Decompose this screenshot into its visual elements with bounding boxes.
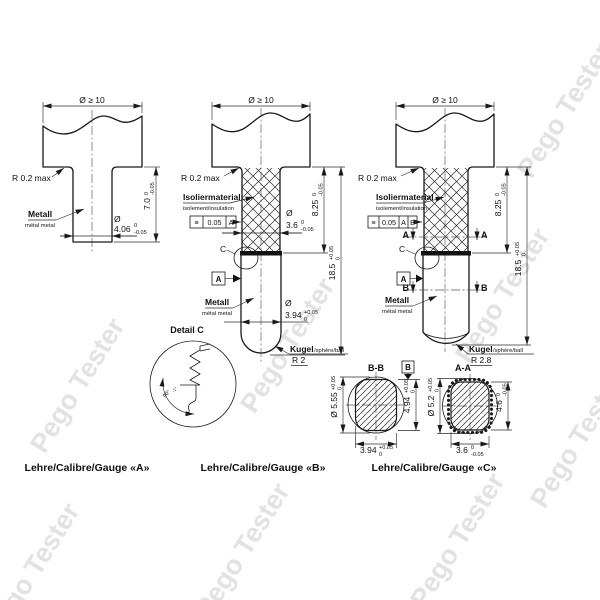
gauge-b-ins-dia-tol-bot: -0.05 [301,227,314,233]
gauge-b-radius-label: R 0.2 max [181,173,220,183]
gauge-b-top-dia: Ø ≥ 10 [248,95,274,105]
gauge-b-metal-label: Metall [205,297,229,307]
gauge-c-detail-ref: C [399,244,405,254]
gauge-b-insulation-label: Isoliermaterial [183,192,241,202]
section-aa-width-tol-top: 0 [471,445,474,451]
gauge-b-metal-sublabel: métal metal [202,311,232,317]
section-bb-width-value: 3.94 [360,445,377,455]
gauge-c-gdt-datum-ref-1: A [401,218,406,227]
gauge-c-title: Lehre/Calibre/Gauge «C» [372,462,497,474]
detail-c-title: Detail C [170,325,204,335]
gauge-c-gdt-symbol: ≡ [371,218,375,227]
gauge-b-insulation-hatch [242,168,280,251]
technical-drawing-page: Pego Tester Pego Tester Pego Tester Pego… [0,0,600,600]
section-bb-profile [356,380,397,431]
gauge-drawing-svg: Pego Tester Pego Tester Pego Tester Pego… [0,0,600,600]
gauge-b-ball-sublabel: /sphère/ball [314,348,344,354]
gauge-a-height-value: 7.0 [142,198,152,210]
section-bb-view: B-B B Ø 5.55 +0.05 0 4.94 +0.05 0 3.94 [329,361,420,458]
section-bb-height-tol-bot: 0 [411,390,417,393]
gauge-b-pin-dia-symbol: Ø [285,298,292,308]
gauge-c-top-dia: Ø ≥ 10 [432,95,458,105]
section-bb-width-tol-top: +0.05 [379,445,393,451]
gauge-a-radius-label: R 0.2 max [12,173,51,183]
watermark-text: Pego Tester [234,272,341,418]
gauge-c-ins-height-value: 8.25 [493,199,503,216]
gauge-b-pin-dia-value: 3.94 [285,310,302,320]
gauge-b-total-height-tol-top: +0.05 [329,246,335,260]
gauge-b-ins-dia-symbol: Ø [286,208,293,218]
gauge-c-radius-label: R 0.2 max [358,173,397,183]
gauge-c-section-bb-letter-left: B [403,283,410,293]
section-aa-width-value: 3.6 [456,445,468,455]
gauge-b-ball-radius: R 2 [292,355,306,365]
gauge-b-view: Ø ≥ 10 R 0.2 max Isoliermaterial isoleme… [181,95,348,366]
gauge-a-view: Ø ≥ 10 R 0.2 max Metall métal metal Ø 4.… [12,95,160,252]
section-bb-datum-flag: B [402,361,414,380]
gauge-b-gdt-frame: ≡ 0.05 A [190,216,241,228]
section-aa-dia-tol-top: +0.05 [428,378,434,392]
gauge-b-datum-a: A [212,272,241,285]
watermark-text: Pego Tester [189,477,296,600]
gauge-a-stem-dia-value: 4.06 [114,224,131,234]
detail-c-profile [180,346,200,413]
watermark-text: Pego Tester [524,367,600,513]
gauge-a-top-dia: Ø ≥ 10 [79,95,105,105]
watermark-text: Pego Tester [511,37,600,183]
gauge-c-insulation-label: Isoliermaterial [376,192,434,202]
section-bb-dia-tol-bot: 0 [338,387,344,390]
gauge-c-section-aa-letter-right: A [481,230,488,240]
section-aa-height-tol-bot: -0.05 [503,383,509,396]
gauge-c-ins-height-tol-bot: -0.05 [502,183,508,196]
gauge-c-ins-height-tol-top: 0 [495,193,501,196]
gauge-a-metal-sublabel: métal metal [25,223,55,229]
gauge-c-insulation-hatch [424,168,468,251]
section-aa-dia-value: Ø 5.2 [426,395,436,416]
gauge-b-detail-ref: C [220,244,226,254]
gauge-b-total-height-tol-bot: 0 [336,257,342,260]
gauge-c-total-height-tol-top: +0.05 [515,242,521,256]
gauge-a-stem-dia-tol-top: 0 [134,223,137,229]
section-bb-width-tol-bot: 0 [379,452,382,458]
detail-c-hatch-marks [200,344,210,351]
gauge-c-datum-triangle [416,275,423,283]
gauge-c-ball-sublabel: /sphère/ball [493,348,523,354]
section-aa-title: A-A [455,363,471,373]
gauge-b-ball-label: Kugel [290,344,314,354]
watermark-text: Pego Tester [24,312,131,458]
section-bb-dia-tol-top: +0.05 [331,376,337,390]
gauge-b-datum-triangle [233,275,241,283]
gauge-b-ins-dia-tol-top: 0 [301,220,304,226]
gauge-b-ins-height-tol-bot: -0.05 [319,183,325,196]
section-aa-width-tol-bot: -0.05 [471,452,484,458]
gauge-b-datum-letter: A [216,275,222,284]
gauge-b-total-height-value: 18.5 [327,263,337,280]
gauge-a-stem-dia-symbol: Ø [114,214,121,224]
section-bb-dia-value: Ø 5.55 [329,392,339,418]
gauge-c-ball-label: Kugel [469,344,493,354]
section-aa-height-value: 4.6 [494,400,504,412]
gauge-b-pin-dia-tol-bot: 0 [304,317,307,323]
section-bb-height-tol-top: +0.05 [404,379,410,393]
gauge-b-pin-dia-tol-top: +0.05 [304,310,318,316]
gauge-c-section-aa-letter-left: A [403,230,410,240]
gauge-b-gdt-symbol: ≡ [194,218,198,227]
gauge-c-view: Ø ≥ 10 R 0.2 max Isoliermaterial isoleme… [358,95,534,366]
gauge-c-insulation-sublabel: isolement/insulation [376,206,427,212]
gauge-c-section-bb-letter-right: B [481,283,488,293]
gauge-c-gdt-datum-ref-2: B [410,218,415,227]
gauge-b-ins-height-value: 8.25 [310,199,320,216]
gauge-a-metal-label: Metall [28,209,52,219]
watermark-text: Pego Tester [0,497,86,600]
gauge-c-total-height-value: 18.5 [513,259,523,276]
gauge-a-title: Lehre/Calibre/Gauge «A» [25,462,150,474]
gauge-c-gdt-frame: ≡ 0.05 A B [368,216,422,228]
gauge-c-total-height-tol-bot: 0 [522,253,528,256]
gauge-b-ins-height-tol-top: 0 [312,193,318,196]
watermark-text: Pego Tester [404,467,511,600]
gauge-b-ins-dia-value: 3.6 [286,220,298,230]
section-bb-title: B-B [368,363,384,373]
section-bb-datum-triangle [404,374,412,380]
gauge-b-gdt-datum-ref: A [229,218,234,227]
gauge-c-ball-radius: R 2.8 [471,355,492,365]
gauge-c-gauging-edge [421,251,471,256]
detail-c-angle-tol: -1° [171,386,179,394]
gauge-c-gdt-tolerance: 0.05 [382,218,396,227]
gauge-b-insulation-sublabel: isolement/insulation [183,206,234,212]
section-aa-dia-tol-bot: 0 [435,389,441,392]
section-aa-height-tol-top: 0 [496,393,502,396]
gauge-c-datum-a: A [397,272,423,285]
gauge-b-gauging-edge [240,251,282,256]
section-aa-profile [451,382,489,430]
gauge-c-metal-label: Metall [385,295,409,305]
section-bb-height-value: 4.94 [402,396,412,413]
detail-c-view: Detail C 90° -1° [150,325,236,427]
gauge-a-stem-dia-tol-bot: -0.05 [134,230,147,236]
gauge-b-title: Lehre/Calibre/Gauge «B» [201,462,326,474]
gauge-a-height-tol-bot: -0.05 [150,182,156,195]
gauge-b-gdt-tolerance: 0.05 [208,218,222,227]
section-aa-view: A-A Ø 5.2 +0.05 0 4.6 0 -0.05 3.6 0 -0.0… [426,363,512,458]
gauge-c-metal-sublabel: métal metal [382,309,412,315]
section-bb-datum-letter: B [405,363,411,372]
